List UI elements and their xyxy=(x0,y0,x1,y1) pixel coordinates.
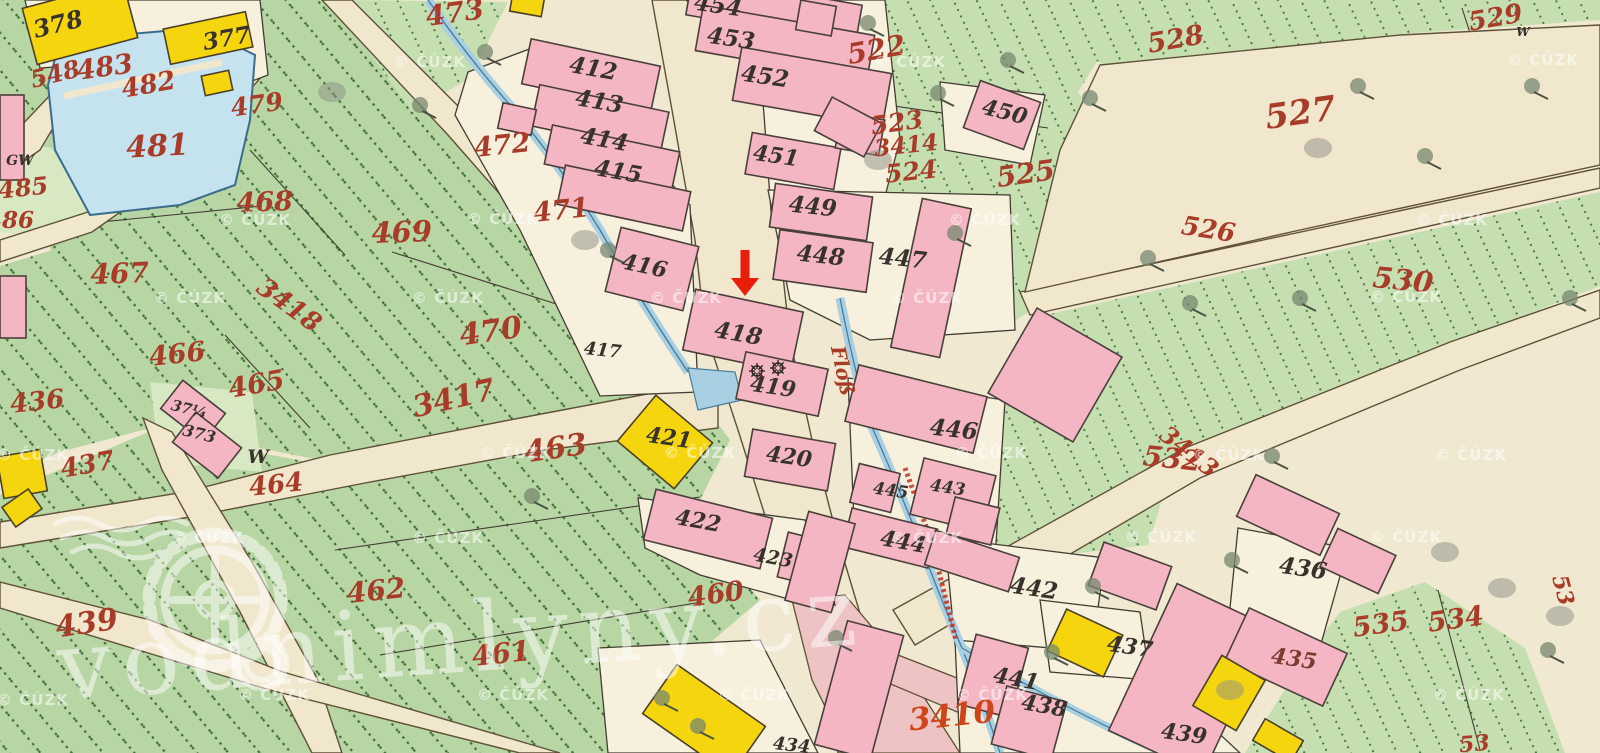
map-label-53: 53 xyxy=(1458,730,1491,753)
tree-symbol xyxy=(1085,578,1101,594)
tree-symbol xyxy=(524,488,540,504)
tree-symbol xyxy=(1000,52,1016,68)
tree-symbol xyxy=(1044,644,1060,660)
map-label-486: 486 xyxy=(0,207,34,234)
map-label-481: 481 xyxy=(125,127,189,165)
map-label-464: 464 xyxy=(248,467,305,503)
tree-symbol xyxy=(1417,148,1433,164)
cuzk-watermark: © ČÚZK xyxy=(1433,685,1505,704)
tree-symbol xyxy=(930,85,946,101)
tree-symbol xyxy=(1292,290,1308,306)
tree-symbol xyxy=(1082,90,1098,106)
cuzk-watermark: © ČÚZK xyxy=(650,288,722,307)
map-label-446: 446 xyxy=(928,414,979,446)
map-label-449: 449 xyxy=(787,191,838,223)
cuzk-watermark: © ČÚZK xyxy=(1125,527,1197,546)
map-label-W: W xyxy=(1516,25,1531,39)
cuzk-watermark: © ČÚZK xyxy=(467,209,539,228)
map-label-485: 485 xyxy=(0,171,50,205)
cuzk-watermark: © ČÚZK xyxy=(219,210,291,229)
shadow-blob xyxy=(1216,680,1244,700)
map-label-469: 469 xyxy=(371,214,433,250)
cuzk-watermark: © ČÚZK xyxy=(1507,50,1579,69)
tree-symbol xyxy=(1224,552,1240,568)
tree-symbol xyxy=(412,97,428,113)
tree-symbol xyxy=(1524,78,1540,94)
map-label-W: W xyxy=(247,446,270,468)
cuzk-watermark: © ČÚZK xyxy=(0,445,69,464)
map-label-436: 436 xyxy=(9,384,66,420)
tree-symbol xyxy=(654,690,670,706)
cuzk-watermark: © ČÚZK xyxy=(412,288,484,307)
map-label-467: 467 xyxy=(90,256,150,291)
map-label-466: 466 xyxy=(147,336,207,373)
tree-symbol xyxy=(1182,295,1198,311)
shadow-blob xyxy=(1304,138,1332,158)
map-label-524: 524 xyxy=(884,154,939,188)
tree-symbol xyxy=(1562,290,1578,306)
tree-symbol xyxy=(1350,78,1366,94)
shadow-blob xyxy=(1488,578,1516,598)
shadow-blob xyxy=(318,82,346,102)
cuzk-watermark: © ČÚZK xyxy=(891,288,963,307)
map-label-471: 471 xyxy=(531,192,590,229)
map-label-434: 434 xyxy=(772,733,812,753)
cuzk-watermark: © ČÚZK xyxy=(955,443,1027,462)
tree-symbol xyxy=(1140,250,1156,266)
cuzk-watermark: © ČÚZK xyxy=(154,288,226,307)
cuzk-watermark: © ČÚZK xyxy=(480,443,552,462)
cuzk-watermark: © ČÚZK xyxy=(956,685,1028,704)
tree-symbol xyxy=(690,718,706,734)
map-label-GW: GW xyxy=(6,153,35,169)
cuzk-watermark: © ČÚZK xyxy=(664,443,736,462)
cuzk-watermark: © ČÚZK xyxy=(891,528,963,547)
cuzk-watermark: © ČÚZK xyxy=(1193,445,1265,464)
cuzk-watermark: © ČÚZK xyxy=(1370,287,1442,306)
cuzk-watermark: © ČÚZK xyxy=(394,52,466,71)
tree-symbol xyxy=(600,242,616,258)
tree-symbol xyxy=(1264,448,1280,464)
map-canvas[interactable]: 5484834824814794864854684734724714694673… xyxy=(0,0,1600,753)
map-label-417: 417 xyxy=(583,338,623,363)
cuzk-watermark: © ČÚZK xyxy=(412,528,484,547)
cuzk-watermark: © ČÚZK xyxy=(874,52,946,71)
building-masonry xyxy=(796,0,837,36)
cuzk-watermark: © ČÚZK xyxy=(949,210,1021,229)
map-label-472: 472 xyxy=(472,127,531,164)
map-label-447: 447 xyxy=(877,243,928,275)
cuzk-watermark: © ČÚZK xyxy=(718,685,790,704)
cuzk-watermark: © ČÚZK xyxy=(1416,210,1488,229)
tree-symbol xyxy=(477,44,493,60)
map-viewport[interactable]: 5484834824814794864854684734724714694673… xyxy=(0,0,1600,753)
building-masonry xyxy=(0,276,26,338)
cuzk-watermark: © ČÚZK xyxy=(1370,527,1442,546)
tree-symbol xyxy=(860,15,876,31)
shadow-blob xyxy=(571,230,599,250)
map-label-448: 448 xyxy=(795,240,846,272)
tree-symbol xyxy=(1540,642,1556,658)
cuzk-watermark: © ČÚZK xyxy=(1435,445,1507,464)
shadow-blob xyxy=(1546,606,1574,626)
